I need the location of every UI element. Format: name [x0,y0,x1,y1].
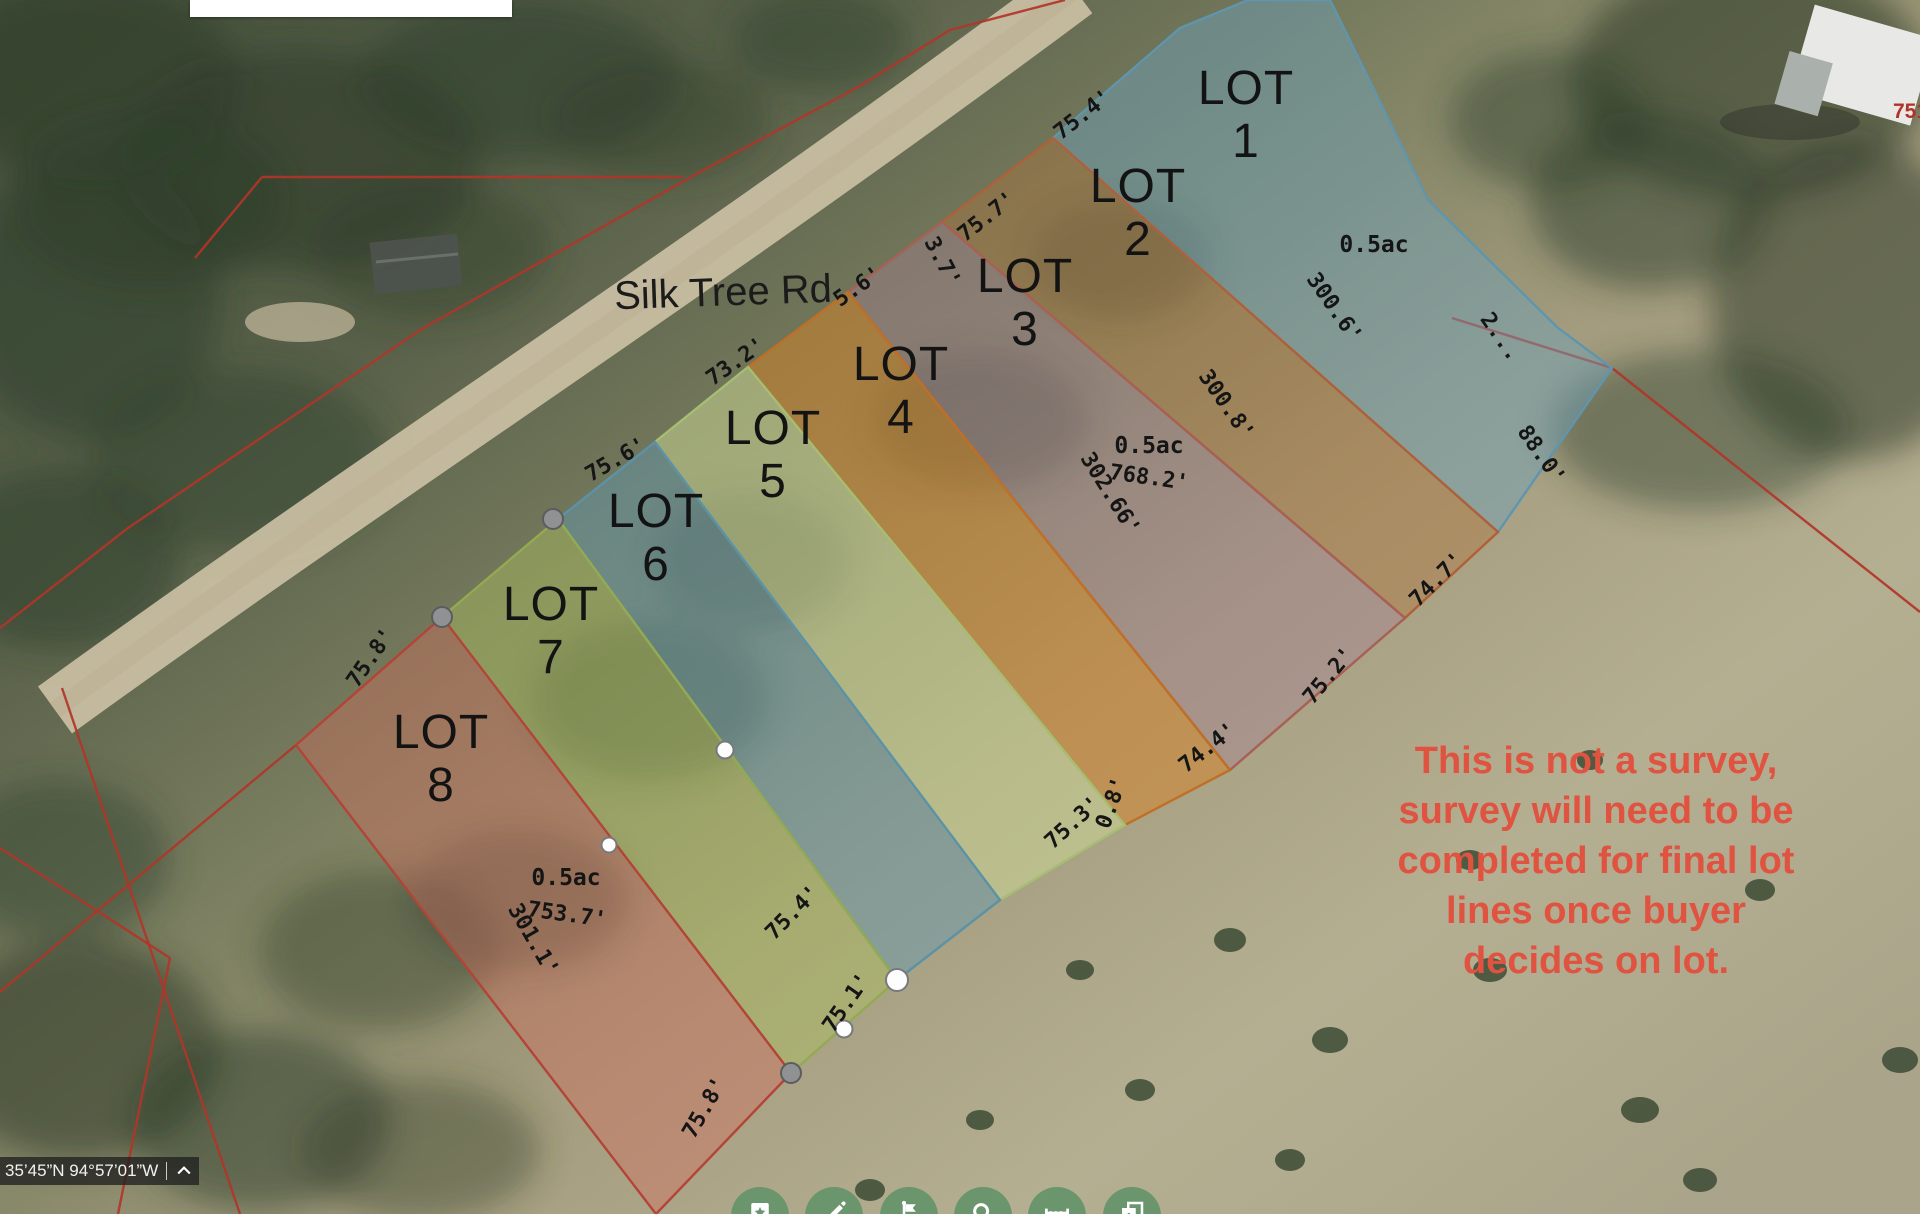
vertex-marker[interactable] [432,607,452,627]
disclaimer-line: lines once buyer [1316,886,1876,936]
layers-icon [1117,1198,1147,1214]
address-label: 751 [1893,100,1920,124]
vertex-marker[interactable] [886,969,908,991]
chevron-up-icon[interactable] [169,1157,199,1185]
disclaimer-line: survey will need to be [1316,786,1876,836]
coordinate-readout: 35’45”N 94°57’01”W [5,1161,166,1181]
divider [166,1162,167,1180]
vertex-marker[interactable] [836,1021,853,1038]
search-bar-partial[interactable] [190,0,512,17]
disclaimer-text: This is not a survey, survey will need t… [1316,736,1876,986]
road-label: Silk Tree Rd [613,267,832,320]
disclaimer-line: decides on lot. [1316,936,1876,986]
map-canvas[interactable] [0,0,1920,1214]
disclaimer-line: completed for final lot [1316,836,1876,886]
coordinate-statusbar: 35’45”N 94°57’01”W [0,1157,199,1185]
flag-icon [894,1198,924,1214]
disclaimer-line: This is not a survey, [1316,736,1876,786]
bookmark-star-icon [745,1198,775,1214]
vertex-marker[interactable] [717,742,734,759]
ruler-icon [1042,1198,1072,1214]
vertex-marker[interactable] [602,838,617,853]
search-icon [968,1198,998,1214]
aerial-map-viewport[interactable]: LOT1LOT2LOT3LOT4LOT5LOT6LOT7LOT875.4'75.… [0,0,1920,1214]
pencil-icon [819,1198,849,1214]
vertex-marker[interactable] [781,1063,801,1083]
vertex-marker[interactable] [543,509,563,529]
